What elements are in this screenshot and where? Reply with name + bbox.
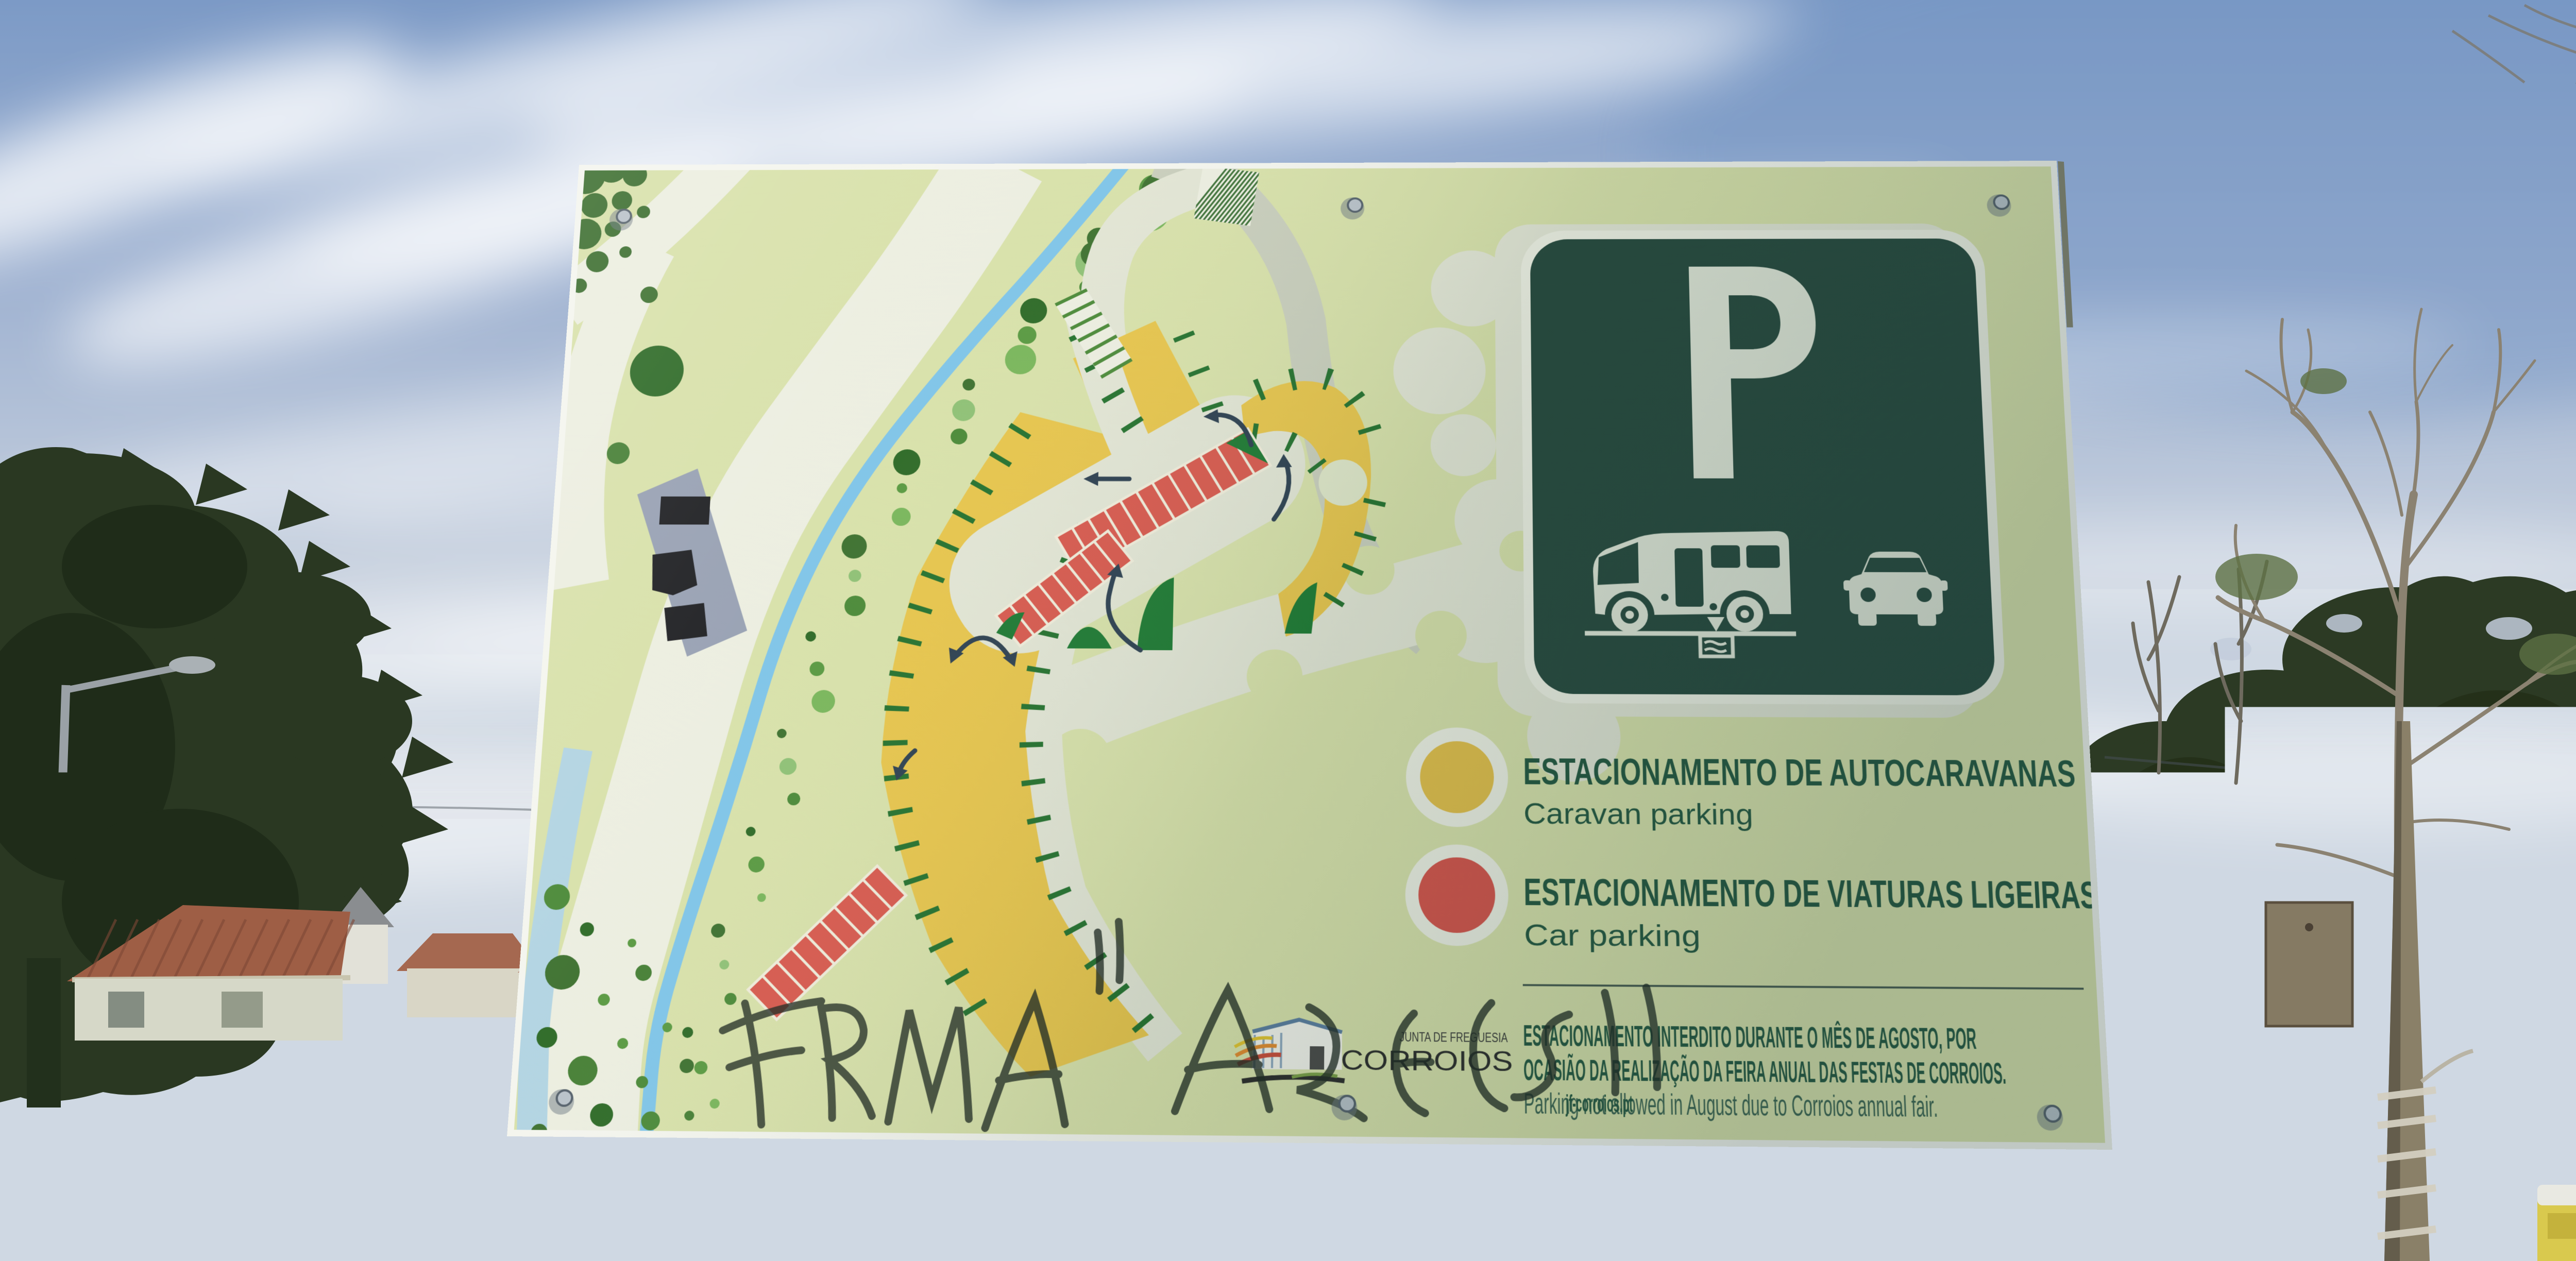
svg-text:WWW.CAMPING-CAR.TRAVEL: WWW.CAMPING-CAR.TRAVEL xyxy=(1674,1128,2210,1156)
